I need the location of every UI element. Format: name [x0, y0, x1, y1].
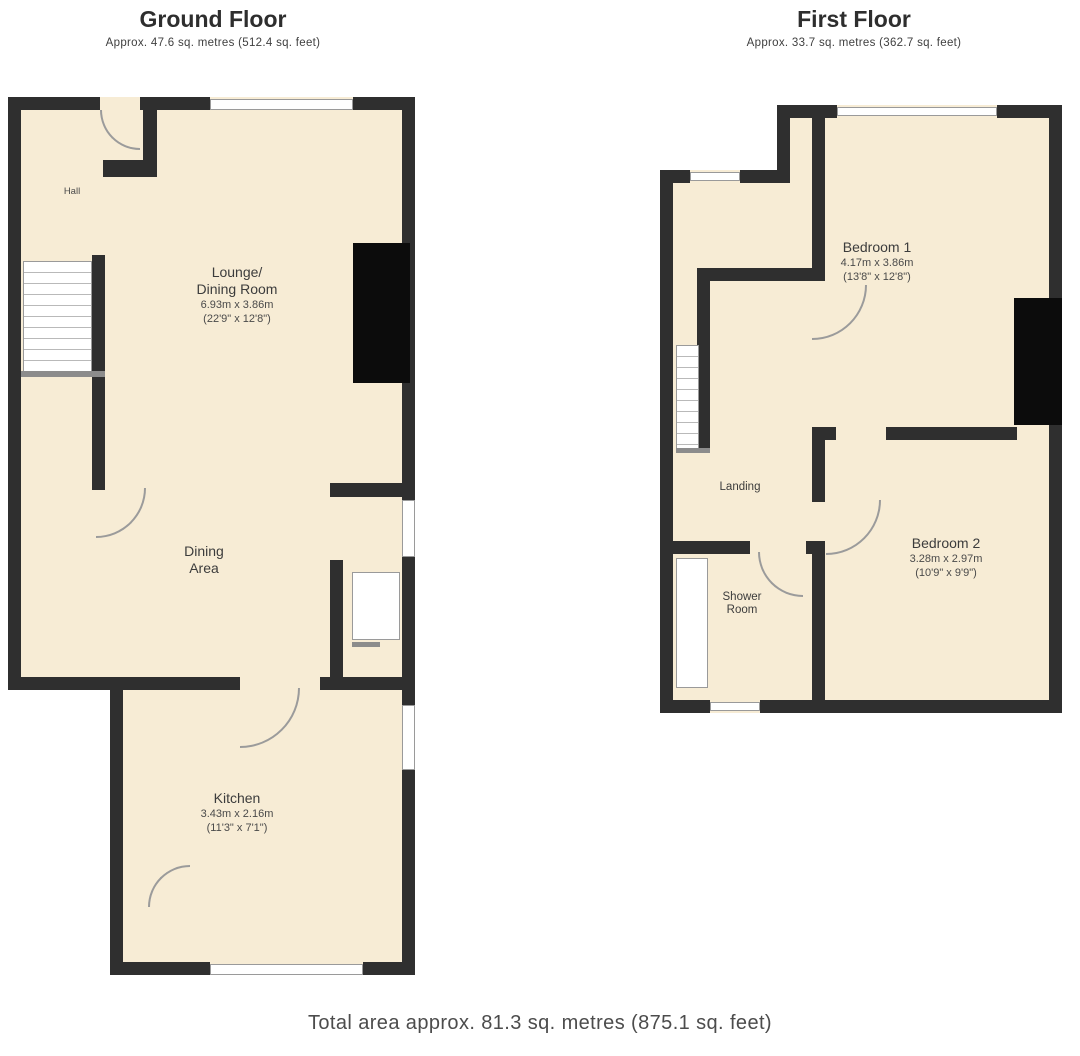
stairs-edge — [676, 448, 710, 453]
chimney-breast — [353, 243, 410, 383]
bedroom1-label: Bedroom 1 4.17m x 3.86m (13'8" x 12'8") — [841, 239, 914, 284]
lounge-label: Lounge/ Dining Room 6.93m x 3.86m (22'9"… — [197, 264, 278, 326]
wall — [402, 97, 415, 705]
window — [837, 107, 997, 116]
stairs-edge — [21, 371, 105, 377]
window — [402, 705, 415, 770]
bedroom2-label: Bedroom 2 3.28m x 2.97m (10'9" x 9'9") — [910, 535, 983, 580]
shower-enclosure — [676, 558, 708, 688]
cupboard — [352, 572, 400, 640]
window — [402, 500, 415, 557]
first-floor-title: First Floor — [797, 6, 911, 33]
window — [690, 172, 740, 181]
first-floor-subtitle: Approx. 33.7 sq. metres (362.7 sq. feet) — [747, 37, 962, 49]
wall — [8, 97, 100, 110]
total-area-note: Total area approx. 81.3 sq. metres (875.… — [308, 1012, 772, 1035]
window — [210, 99, 353, 110]
wall — [8, 677, 125, 690]
wall — [330, 483, 402, 497]
wall — [806, 541, 825, 554]
wall — [330, 560, 343, 690]
floorplan-canvas: Ground Floor Approx. 47.6 sq. metres (51… — [0, 0, 1080, 1056]
wall — [103, 160, 157, 177]
wall — [110, 677, 123, 975]
stairs — [676, 345, 699, 450]
wall — [110, 962, 210, 975]
ground-floor-title: Ground Floor — [140, 6, 287, 33]
ground-floor-subtitle: Approx. 47.6 sq. metres (512.4 sq. feet) — [106, 37, 321, 49]
cupboard-edge — [352, 642, 380, 647]
shower-room-label: Shower Room — [723, 591, 762, 617]
wall — [140, 97, 210, 110]
stairs — [23, 261, 92, 375]
wall — [812, 118, 825, 281]
wall — [110, 677, 240, 690]
landing-label: Landing — [720, 481, 761, 494]
wall — [660, 700, 710, 713]
wall — [660, 541, 750, 554]
wall — [812, 541, 825, 713]
wall — [8, 97, 21, 690]
wall — [812, 427, 825, 502]
wall — [886, 427, 1017, 440]
wall — [660, 170, 673, 713]
dining-area-label: Dining Area — [184, 543, 224, 577]
hall-label: Hall — [64, 186, 80, 197]
wall — [402, 770, 415, 975]
patio-door — [210, 964, 363, 975]
kitchen-label: Kitchen 3.43m x 2.16m (11'3" x 7'1") — [201, 790, 274, 835]
wall — [697, 268, 825, 281]
window — [710, 702, 760, 711]
chimney-breast — [1014, 298, 1062, 425]
wall — [760, 700, 1062, 713]
wall — [777, 105, 837, 118]
